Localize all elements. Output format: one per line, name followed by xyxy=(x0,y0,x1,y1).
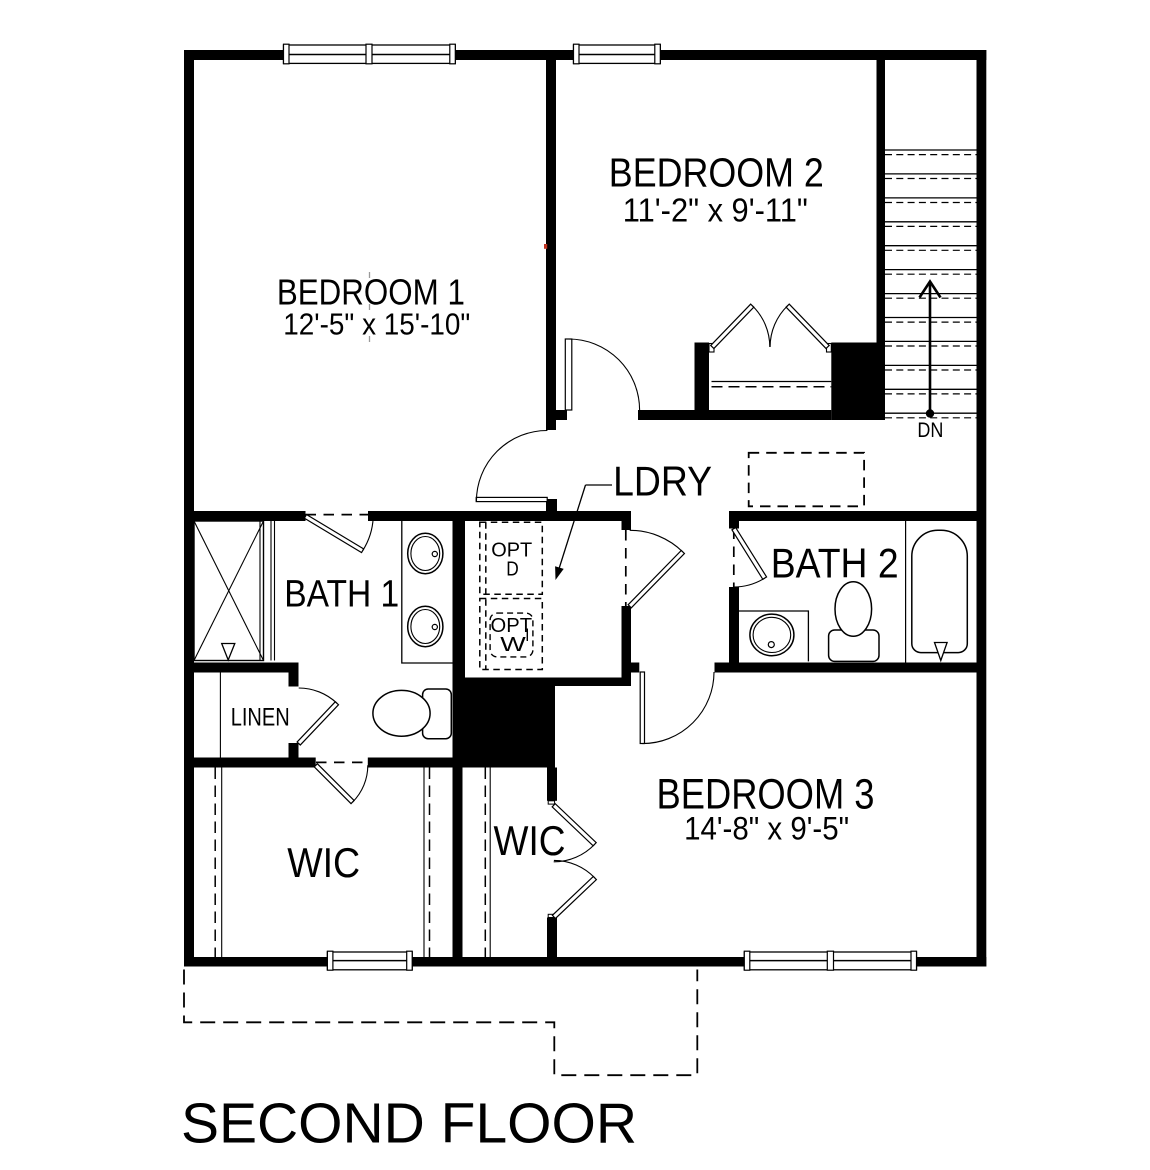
svg-text:BATH 2: BATH 2 xyxy=(771,539,899,586)
svg-text:LINEN: LINEN xyxy=(231,704,290,732)
svg-text:BATH 1: BATH 1 xyxy=(284,574,399,616)
svg-text:SECOND FLOOR: SECOND FLOOR xyxy=(181,1092,637,1156)
svg-text:WIC: WIC xyxy=(494,817,566,864)
svg-text:W: W xyxy=(500,633,526,656)
svg-text:BEDROOM 2: BEDROOM 2 xyxy=(609,150,824,196)
svg-text:D: D xyxy=(506,558,519,581)
svg-text:LDRY: LDRY xyxy=(613,457,712,504)
svg-text:DN: DN xyxy=(917,418,943,442)
svg-text:WIC: WIC xyxy=(287,839,360,886)
svg-text:14'-8" x 9'-5": 14'-8" x 9'-5" xyxy=(684,811,849,847)
svg-text:11'-2" x 9'-11": 11'-2" x 9'-11" xyxy=(623,192,808,229)
svg-text:12'-5" x 15'-10": 12'-5" x 15'-10" xyxy=(283,308,470,342)
